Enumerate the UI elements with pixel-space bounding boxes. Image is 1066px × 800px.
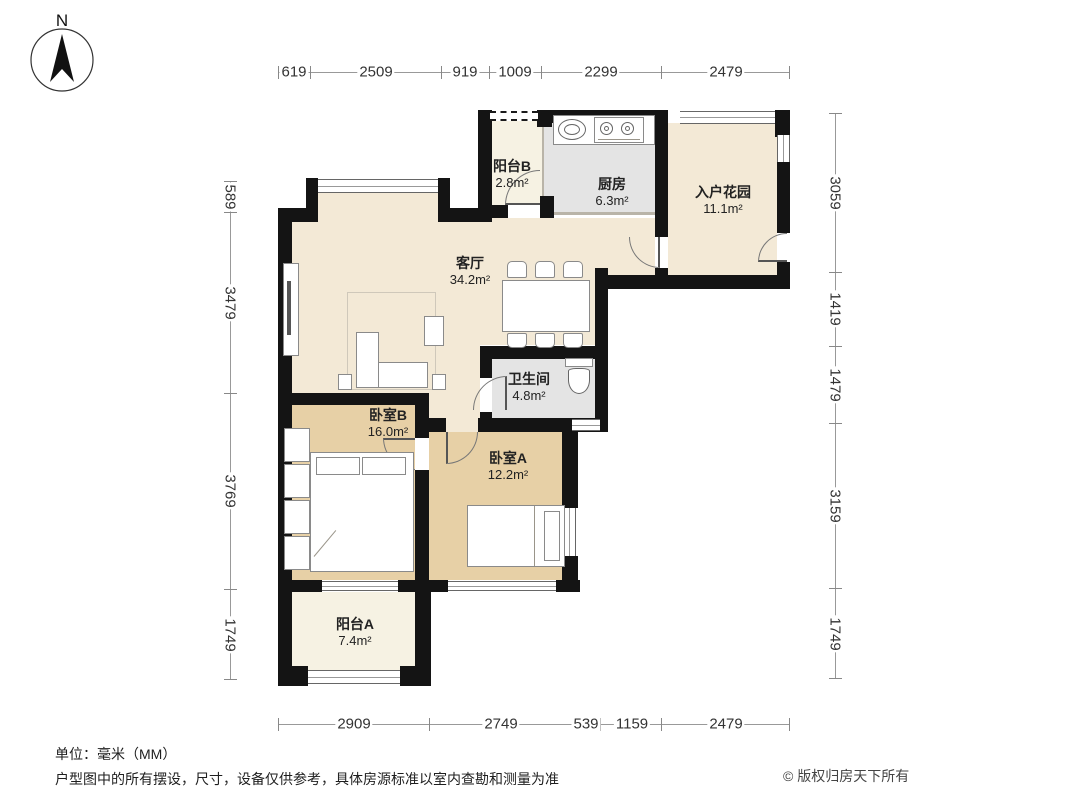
dim-tick: [224, 589, 237, 590]
wall-segment: [278, 580, 322, 592]
dim-tick: [441, 66, 442, 79]
dim-right: 1479: [827, 366, 844, 403]
dim-top: 619: [279, 64, 308, 81]
room-area: 11.1m²: [663, 201, 783, 217]
dining-chair: [535, 333, 555, 348]
room-label-bedroom-b: 卧室B 16.0m²: [328, 407, 448, 439]
dining-table: [502, 280, 590, 332]
room-area: 4.8m²: [487, 388, 571, 404]
room-area: 12.2m²: [448, 467, 568, 483]
window: [777, 135, 790, 162]
dim-bottom: 1159: [614, 716, 650, 733]
dim-tick: [224, 393, 237, 394]
dim-tick: [829, 423, 842, 424]
stove-burner: [625, 126, 630, 131]
wardrobe-cell: [284, 428, 310, 462]
wardrobe-cell: [284, 500, 310, 534]
dim-tick: [829, 272, 842, 273]
dim-tick: [789, 718, 790, 731]
wall-segment: [278, 393, 420, 405]
side-table: [432, 374, 446, 390]
pillow: [544, 511, 560, 561]
dim-tick: [278, 718, 279, 731]
room-area: 2.8m²: [476, 175, 548, 191]
wall-segment: [278, 666, 308, 686]
dining-chair: [563, 261, 583, 278]
room-name: 卧室A: [448, 450, 568, 467]
window: [572, 419, 600, 431]
window: [308, 670, 400, 684]
sink-basin: [564, 124, 580, 135]
floor-plan-page: N 阳台B 2.8m² 厨房 6.3m² 入户花园 11.1m² 客厅 34.2…: [0, 0, 1066, 800]
wall-segment: [595, 275, 790, 289]
room-label-kitchen: 厨房 6.3m²: [572, 176, 652, 208]
wall-segment: [540, 196, 554, 218]
dining-chair: [507, 333, 527, 348]
dim-tick: [224, 679, 237, 680]
dim-left: 3769: [222, 472, 239, 509]
dim-bottom: 539: [571, 716, 600, 733]
dim-tick: [829, 113, 842, 114]
room-name: 厨房: [572, 176, 652, 193]
copyright: © 版权归房天下所有: [783, 766, 909, 786]
dim-left: 3479: [222, 284, 239, 321]
dim-right: 3159: [827, 487, 844, 524]
window: [680, 111, 775, 124]
tv: [287, 281, 291, 335]
dim-top: 1009: [496, 64, 533, 81]
dim-tick: [489, 66, 490, 79]
wardrobe-cell: [284, 536, 310, 570]
dim-tick: [661, 718, 662, 731]
dim-bottom: 2479: [707, 716, 744, 733]
wall-segment: [488, 205, 508, 218]
room-area: 34.2m²: [410, 272, 530, 288]
room-label-entry-garden: 入户花园 11.1m²: [663, 184, 783, 216]
window: [318, 179, 438, 193]
dim-right: 3059: [827, 174, 844, 211]
dim-right: 1749: [827, 615, 844, 652]
wall-segment: [775, 110, 790, 137]
dim-top: 2509: [357, 64, 394, 81]
wall-segment: [398, 580, 434, 592]
dim-top: 919: [450, 64, 479, 81]
armchair: [424, 316, 444, 346]
dim-tick: [310, 66, 311, 79]
room-label-bedroom-a: 卧室A 12.2m²: [448, 450, 568, 482]
room-label-bathroom: 卫生间 4.8m²: [487, 371, 571, 403]
room-name: 阳台B: [476, 158, 548, 175]
wall-segment: [434, 580, 448, 592]
room-area: 7.4m²: [295, 633, 415, 649]
wall-segment: [400, 666, 431, 686]
dim-bottom: 2749: [482, 716, 519, 733]
wall-segment: [306, 178, 318, 222]
dining-chair: [563, 333, 583, 348]
dining-chair: [535, 261, 555, 278]
dim-tick: [789, 66, 790, 79]
side-table: [338, 374, 352, 390]
dim-tick: [661, 66, 662, 79]
wall-segment: [415, 470, 429, 592]
dim-top: 2479: [707, 64, 744, 81]
dim-top: 2299: [582, 64, 619, 81]
window: [448, 581, 556, 591]
sofa: [378, 362, 428, 388]
stove-edge: [598, 139, 640, 140]
room-name: 卫生间: [487, 371, 571, 388]
room-label-living-room: 客厅 34.2m²: [410, 255, 530, 287]
pillow: [316, 457, 360, 475]
room-name: 入户花园: [663, 184, 783, 201]
window: [322, 581, 398, 591]
open-edge: [490, 111, 538, 121]
dim-line: [230, 181, 231, 680]
dim-right: 1419: [827, 290, 844, 327]
room-name: 阳台A: [295, 616, 415, 633]
toilet-tank: [565, 358, 593, 367]
room-area: 16.0m²: [328, 424, 448, 440]
room-name: 客厅: [410, 255, 530, 272]
dim-bottom: 2909: [335, 716, 372, 733]
wall-segment: [478, 418, 488, 432]
wall-segment: [438, 178, 450, 222]
room-label-balcony-a: 阳台A 7.4m²: [295, 616, 415, 648]
pillow: [362, 457, 406, 475]
room-label-balcony-b: 阳台B 2.8m²: [476, 158, 548, 190]
dim-tick: [829, 678, 842, 679]
open-boundary: [552, 212, 655, 215]
dim-tick: [224, 212, 237, 213]
dim-left: 589: [222, 182, 239, 211]
wall-segment: [655, 110, 668, 237]
tv-cabinet: [283, 263, 299, 356]
wardrobe-cell: [284, 464, 310, 498]
dim-tick: [429, 718, 430, 731]
dim-left: 1749: [222, 616, 239, 653]
stove-burner: [604, 126, 609, 131]
unit-note: 单位：毫米（MM）: [55, 744, 176, 764]
room-name: 卧室B: [328, 407, 448, 424]
dim-tick: [829, 346, 842, 347]
dim-tick: [829, 588, 842, 589]
room-area: 6.3m²: [572, 193, 652, 209]
dim-tick: [541, 66, 542, 79]
sofa: [356, 332, 379, 388]
blanket-fold: [534, 506, 535, 566]
disclaimer: 户型图中的所有摆设，尺寸，设备仅供参考，具体房源标准以室内查勘和测量为准: [55, 769, 559, 789]
